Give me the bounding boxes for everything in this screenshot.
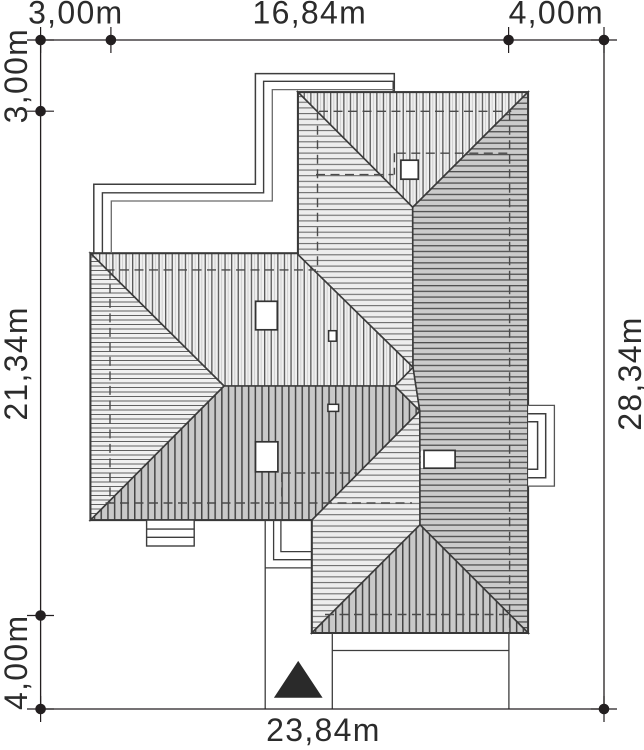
- svg-text:21,34m: 21,34m: [0, 306, 34, 421]
- svg-text:23,84m: 23,84m: [266, 712, 381, 748]
- svg-text:4,00m: 4,00m: [0, 615, 34, 710]
- svg-text:16,84m: 16,84m: [253, 0, 368, 31]
- svg-text:3,00m: 3,00m: [28, 0, 123, 31]
- svg-text:28,34m: 28,34m: [612, 316, 644, 431]
- svg-text:3,00m: 3,00m: [0, 28, 34, 123]
- svg-text:4,00m: 4,00m: [509, 0, 604, 31]
